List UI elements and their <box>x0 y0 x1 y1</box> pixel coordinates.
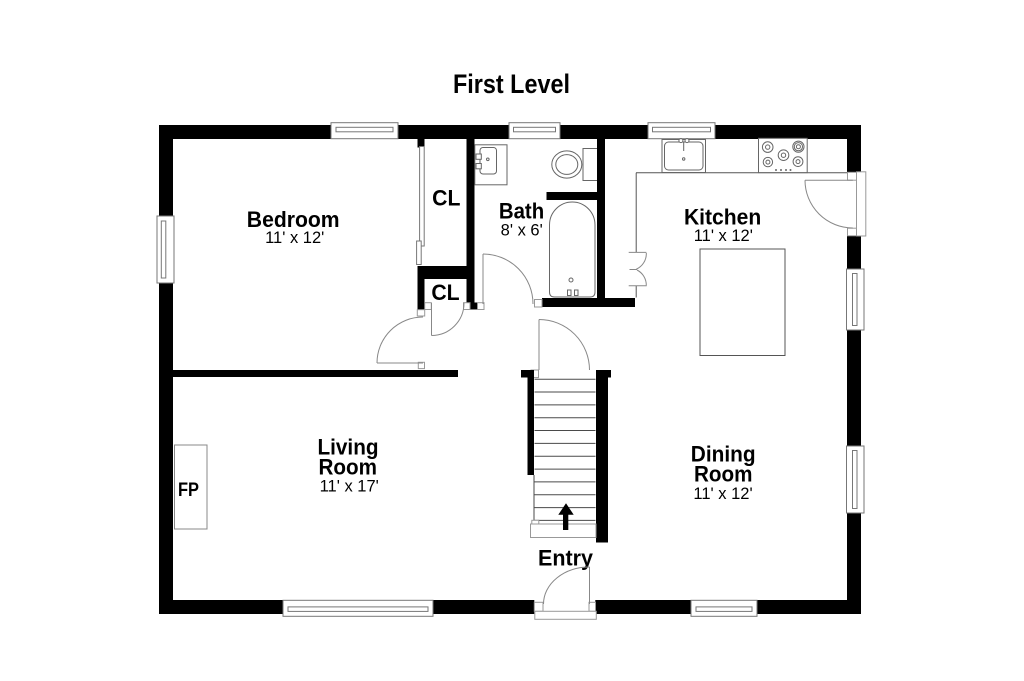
svg-text:8' x 6': 8' x 6' <box>501 222 543 240</box>
svg-text:First Level: First Level <box>453 69 570 99</box>
svg-text:Bath: Bath <box>499 199 544 224</box>
svg-text:11' x 12': 11' x 12' <box>265 229 324 247</box>
svg-text:CL: CL <box>432 186 461 211</box>
svg-text:Kitchen: Kitchen <box>684 205 761 230</box>
svg-text:FP: FP <box>178 480 199 501</box>
svg-text:11' x 12': 11' x 12' <box>693 485 752 503</box>
svg-text:Room: Room <box>318 455 377 480</box>
svg-text:Room: Room <box>694 462 753 487</box>
svg-text:11' x 12': 11' x 12' <box>694 227 753 245</box>
svg-text:11' x 17': 11' x 17' <box>320 478 379 496</box>
svg-text:CL: CL <box>431 280 460 305</box>
